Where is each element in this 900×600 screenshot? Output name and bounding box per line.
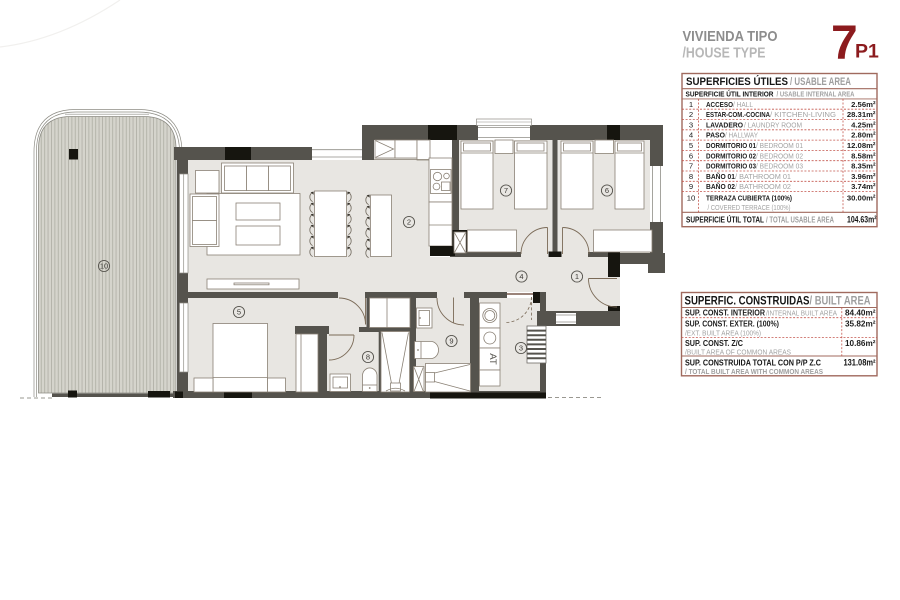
svg-text:DORMITORIO 01: DORMITORIO 01 (706, 141, 757, 150)
svg-text:5: 5 (237, 308, 241, 317)
svg-text:84.40m²: 84.40m² (845, 308, 876, 317)
svg-text:/ BEDROOM 02: / BEDROOM 02 (756, 151, 803, 160)
svg-text:/ HALL: / HALL (733, 100, 754, 109)
svg-text:9: 9 (449, 337, 453, 346)
svg-text:SUP. CONST. INTERIOR: SUP. CONST. INTERIOR (685, 308, 765, 317)
svg-text:PASO: PASO (706, 131, 725, 140)
svg-text:/ BEDROOM 03: / BEDROOM 03 (756, 162, 803, 171)
svg-text:/ BATHROOM 01: / BATHROOM 01 (735, 172, 791, 181)
svg-text:12.08m²: 12.08m² (847, 141, 876, 150)
svg-text:SUPERFICIES ÚTILES: SUPERFICIES ÚTILES (686, 75, 788, 88)
svg-text:104.63m²: 104.63m² (847, 214, 877, 225)
svg-text:/ TOTAL BUILT AREA WITH COMMON: / TOTAL BUILT AREA WITH COMMON AREAS (685, 367, 823, 376)
svg-text:131.08m²: 131.08m² (844, 357, 876, 367)
svg-text:DORMITORIO 03: DORMITORIO 03 (706, 162, 756, 171)
svg-text:7: 7 (689, 162, 693, 171)
svg-text:8.35m²: 8.35m² (851, 162, 876, 171)
svg-text:1: 1 (575, 272, 579, 281)
svg-text:/ BATHROOM 02: / BATHROOM 02 (735, 182, 791, 191)
svg-text:8.58m²: 8.58m² (851, 151, 876, 160)
svg-text:/ HALLWAY: / HALLWAY (725, 131, 758, 140)
svg-text:2.80m²: 2.80m² (851, 131, 876, 140)
svg-text:/BUILT AREA OF COMMON AREAS: /BUILT AREA OF COMMON AREAS (685, 347, 791, 356)
svg-text:3.74m²: 3.74m² (851, 182, 876, 191)
svg-text:2.56m²: 2.56m² (851, 100, 876, 109)
svg-text:4: 4 (519, 272, 523, 281)
svg-text:10.86m²: 10.86m² (845, 339, 876, 348)
svg-text:ESTAR-COM.-COCINA: ESTAR-COM.-COCINA (706, 110, 770, 119)
svg-text:8: 8 (689, 172, 693, 181)
svg-text:4.25m²: 4.25m² (851, 120, 876, 129)
svg-text:/ BEDROOM 01: / BEDROOM 01 (756, 141, 803, 150)
svg-text:/ BUILT AREA: / BUILT AREA (810, 293, 871, 307)
svg-text:DORMITORIO 02: DORMITORIO 02 (706, 151, 756, 160)
svg-text:3: 3 (689, 120, 693, 129)
svg-text:/ KITCHEN-LIVING: / KITCHEN-LIVING (770, 110, 836, 119)
svg-text:2: 2 (689, 110, 693, 119)
svg-text:3.96m²: 3.96m² (851, 172, 876, 181)
svg-text:30.00m²: 30.00m² (847, 194, 876, 203)
svg-text:3: 3 (519, 344, 523, 353)
svg-text:6: 6 (689, 151, 693, 160)
svg-text:SUP. CONSTRUIDA TOTAL CON P/P: SUP. CONSTRUIDA TOTAL CON P/P Z.C (685, 357, 821, 367)
svg-text:/ USABLE INTERNAL AREA: / USABLE INTERNAL AREA (777, 90, 855, 99)
svg-text:LAVADERO: LAVADERO (706, 120, 743, 129)
svg-text:/ USABLE AREA: / USABLE AREA (790, 76, 851, 88)
svg-text:/ TOTAL USABLE AREA: / TOTAL USABLE AREA (766, 215, 834, 225)
svg-text:10: 10 (687, 194, 696, 203)
svg-text:9: 9 (689, 182, 693, 191)
svg-text:SUPERFICIE ÚTIL TOTAL: SUPERFICIE ÚTIL TOTAL (686, 214, 764, 225)
svg-text:28.31m²: 28.31m² (847, 110, 876, 119)
svg-text:SUPERFICIE ÚTIL INTERIOR: SUPERFICIE ÚTIL INTERIOR (686, 90, 775, 99)
svg-text:P1: P1 (855, 41, 879, 63)
svg-text:1: 1 (689, 100, 693, 109)
svg-text:/INTERNAL BUILT AREA: /INTERNAL BUILT AREA (766, 308, 838, 317)
svg-text:2: 2 (407, 218, 411, 227)
svg-text:8: 8 (366, 353, 370, 362)
svg-text:/ COVERED TERRACE (100%): / COVERED TERRACE (100%) (708, 203, 791, 212)
svg-text:BAÑO 02: BAÑO 02 (706, 182, 735, 191)
svg-text:/EXT. BUILT AREA (100%): /EXT. BUILT AREA (100%) (685, 328, 761, 337)
svg-text:6: 6 (605, 186, 609, 195)
svg-text:AT: AT (487, 353, 498, 365)
svg-text:ACCESO: ACCESO (706, 100, 733, 109)
svg-text:7: 7 (831, 17, 858, 70)
svg-text:35.82m²: 35.82m² (845, 320, 876, 329)
svg-text:/HOUSE TYPE: /HOUSE TYPE (683, 45, 766, 62)
svg-text:5: 5 (689, 141, 693, 150)
svg-text:10: 10 (100, 262, 108, 271)
svg-text:VIVIENDA TIPO: VIVIENDA TIPO (683, 28, 778, 45)
svg-text:TERRAZA CUBIERTA (100%): TERRAZA CUBIERTA (100%) (706, 194, 792, 203)
svg-text:4: 4 (689, 131, 694, 140)
svg-text:BAÑO 01: BAÑO 01 (706, 172, 736, 181)
svg-text:7: 7 (504, 186, 508, 195)
svg-text:SUPERFIC. CONSTRUIDAS: SUPERFIC. CONSTRUIDAS (685, 293, 810, 307)
svg-text:/ LAUNDRY ROOM: / LAUNDRY ROOM (744, 120, 802, 129)
